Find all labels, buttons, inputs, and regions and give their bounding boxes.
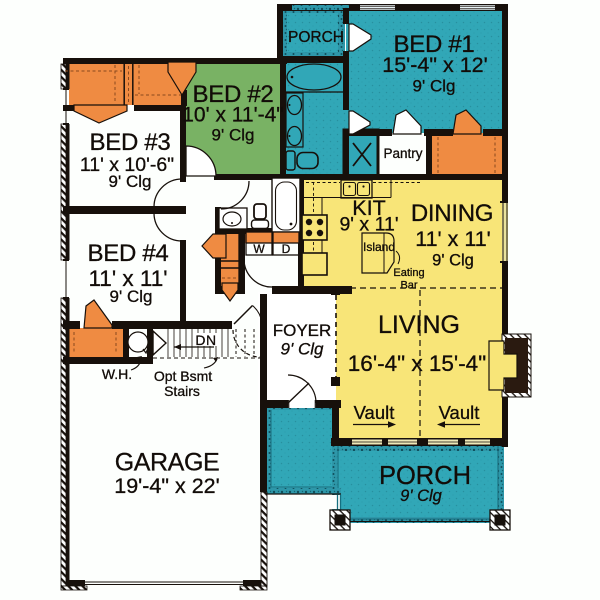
svg-text:11' x 11': 11' x 11' — [415, 227, 491, 251]
svg-text:DINING: DINING — [411, 200, 493, 227]
svg-text:Eating: Eating — [393, 267, 424, 279]
svg-text:BED #4: BED #4 — [88, 240, 169, 267]
svg-text:9' Clg: 9' Clg — [109, 172, 152, 191]
svg-text:PORCH: PORCH — [379, 462, 471, 490]
svg-text:9' Clg: 9' Clg — [281, 340, 324, 359]
svg-text:DN: DN — [195, 332, 216, 348]
svg-text:D: D — [282, 242, 291, 256]
svg-text:GARAGE: GARAGE — [115, 449, 220, 477]
svg-text:9' Clg: 9' Clg — [110, 287, 153, 306]
svg-text:W: W — [253, 242, 265, 256]
svg-text:LIVING: LIVING — [378, 311, 460, 339]
svg-text:Bar: Bar — [400, 280, 417, 292]
svg-text:15'-4" x 12': 15'-4" x 12' — [382, 53, 487, 77]
svg-text:Stairs: Stairs — [164, 383, 200, 399]
svg-text:Opt Bsmt: Opt Bsmt — [154, 368, 212, 384]
svg-text:Vault: Vault — [439, 402, 480, 423]
svg-text:19'-4" x 22': 19'-4" x 22' — [114, 474, 219, 498]
svg-text:Pantry: Pantry — [383, 146, 422, 161]
svg-text:9' x 11': 9' x 11' — [339, 214, 398, 236]
svg-text:PORCH: PORCH — [288, 29, 344, 46]
svg-text:FOYER: FOYER — [273, 321, 332, 340]
svg-text:16'-4" x 15'-4": 16'-4" x 15'-4" — [348, 351, 486, 376]
svg-text:9' Clg: 9' Clg — [413, 77, 456, 96]
svg-text:W.H.: W.H. — [102, 366, 132, 382]
svg-text:BED #3: BED #3 — [90, 129, 171, 156]
svg-text:10' x 11'-4": 10' x 11'-4" — [182, 104, 283, 127]
svg-text:9' Clg: 9' Clg — [212, 126, 255, 145]
svg-text:Island: Island — [363, 240, 395, 254]
svg-text:9' Clg: 9' Clg — [432, 252, 474, 270]
svg-text:9' Clg: 9' Clg — [400, 487, 442, 505]
svg-text:Vault: Vault — [354, 402, 395, 423]
